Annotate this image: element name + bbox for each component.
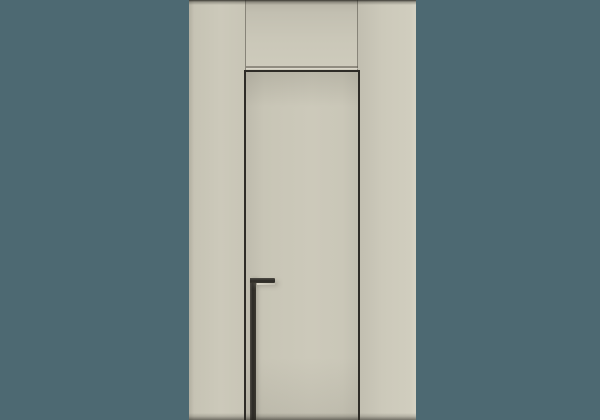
door-reveal-gap bbox=[244, 70, 360, 420]
wall-panel-left bbox=[189, 0, 246, 420]
door-handle-highlight bbox=[257, 283, 276, 285]
door-handle-cap bbox=[250, 278, 275, 284]
wall-paneling bbox=[189, 0, 416, 420]
panel-seam-right bbox=[357, 0, 358, 70]
transom-seam-highlight bbox=[246, 68, 358, 69]
panel-seam-left bbox=[245, 0, 246, 70]
door-leaf bbox=[246, 72, 358, 420]
door-scene bbox=[0, 0, 600, 420]
door-handle-pull bbox=[250, 278, 256, 420]
screenshot-stage bbox=[0, 0, 600, 420]
transom-panel bbox=[246, 0, 358, 70]
wall-panel-right bbox=[358, 0, 417, 420]
